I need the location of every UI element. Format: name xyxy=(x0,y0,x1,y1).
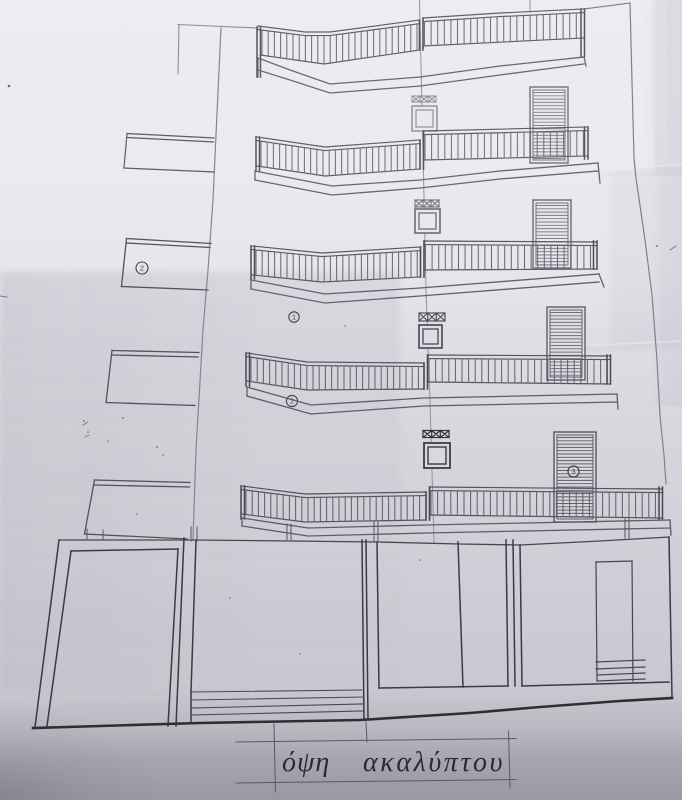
svg-text:1: 1 xyxy=(292,313,296,322)
svg-text:2: 2 xyxy=(140,264,144,273)
svg-text:ακαλύπτου: ακαλύπτου xyxy=(363,747,505,778)
svg-text:2: 2 xyxy=(290,397,294,406)
svg-text:όψη: όψη xyxy=(282,747,330,778)
svg-text:3: 3 xyxy=(571,467,575,476)
